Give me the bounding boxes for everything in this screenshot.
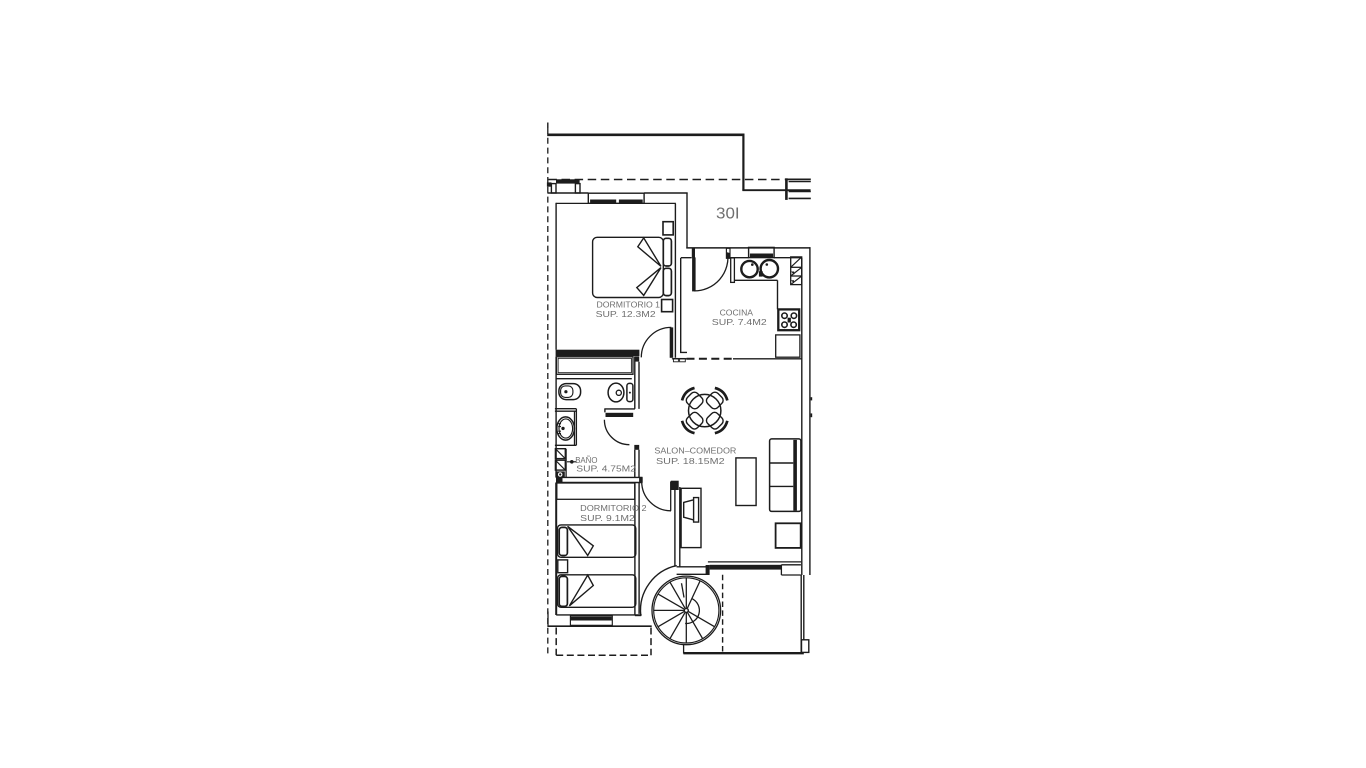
svg-text:SUP. 7.4M2: SUP. 7.4M2	[712, 318, 767, 327]
svg-text:SUP. 9.1M2: SUP. 9.1M2	[580, 513, 635, 523]
svg-text:BAÑO: BAÑO	[575, 455, 598, 465]
svg-text:COCINA: COCINA	[720, 309, 754, 318]
svg-text:SALON–COMEDOR: SALON–COMEDOR	[654, 447, 736, 456]
svg-text:SUP. 4.75M2: SUP. 4.75M2	[576, 465, 636, 474]
svg-text:DORMITORIO 1: DORMITORIO 1	[597, 301, 661, 310]
svg-text:SUP. 12.3M2: SUP. 12.3M2	[596, 310, 657, 319]
svg-text:30I: 30I	[716, 205, 740, 222]
svg-text:SUP. 18.15M2: SUP. 18.15M2	[656, 457, 725, 466]
svg-text:DORMITORIO 2: DORMITORIO 2	[580, 503, 647, 513]
